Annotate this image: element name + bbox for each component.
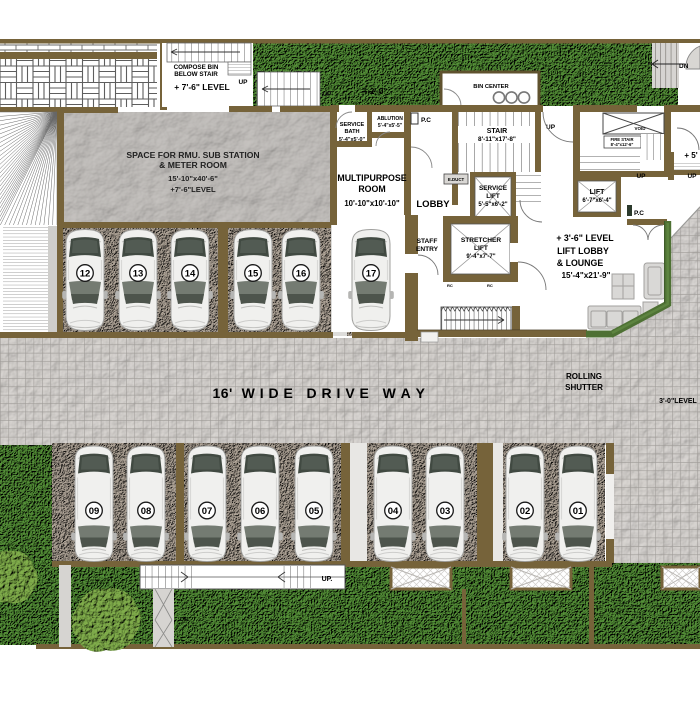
svg-text:+ 5': + 5' [684, 151, 697, 160]
svg-text:STAFF: STAFF [417, 238, 438, 245]
svg-text:15: 15 [248, 268, 259, 279]
svg-text:ROOM: ROOM [358, 184, 385, 194]
svg-text:RC: RC [487, 283, 493, 288]
svg-text:05: 05 [309, 506, 320, 517]
svg-text:+ 7'-6" LEVEL: + 7'-6" LEVEL [174, 82, 229, 92]
svg-text:BELOW STAIR: BELOW STAIR [174, 71, 218, 78]
svg-text:3'-0"LEVEL: 3'-0"LEVEL [659, 398, 697, 405]
svg-text:STRETCHER: STRETCHER [461, 237, 502, 244]
svg-text:5'-5"x6'-2": 5'-5"x6'-2" [478, 202, 507, 208]
svg-text:15'-10"x40'-6": 15'-10"x40'-6" [168, 174, 218, 183]
svg-text:STAIR: STAIR [487, 128, 507, 135]
svg-text:MULTIPURPOSE: MULTIPURPOSE [337, 173, 406, 183]
svg-text:14: 14 [185, 268, 196, 279]
svg-text:LIFT: LIFT [474, 245, 488, 252]
svg-text:P.C: P.C [634, 210, 644, 217]
svg-text:UP: UP [636, 173, 646, 180]
svg-text:09: 09 [89, 506, 100, 517]
svg-text:UP: UP [687, 173, 697, 180]
svg-text:10'-10"x10'-10": 10'-10"x10'-10" [344, 199, 400, 208]
svg-text:16' W I D E D R I V E W A: 16' W I D E D R I V E W A Y [212, 385, 425, 401]
svg-text:VOID: VOID [634, 126, 646, 131]
svg-text:SPACE FOR RMU. SUB STATION: SPACE FOR RMU. SUB STATION [126, 150, 259, 160]
svg-text:UP: UP [322, 91, 332, 98]
svg-text:LIFT: LIFT [590, 189, 605, 196]
svg-text:+ 2'-0": + 2'-0" [363, 87, 387, 96]
svg-text:13: 13 [133, 268, 144, 279]
svg-text:8'-11"x17'-8": 8'-11"x17'-8" [478, 136, 516, 143]
svg-text:12: 12 [80, 268, 91, 279]
svg-text:16: 16 [296, 268, 307, 279]
svg-text:LOBBY: LOBBY [416, 199, 450, 210]
svg-text:LIFT LOBBY: LIFT LOBBY [557, 246, 609, 256]
svg-text:ROLLING: ROLLING [566, 372, 602, 381]
svg-text:8'-4"x12'-6": 8'-4"x12'-6" [611, 142, 634, 147]
svg-text:& LOUNGE: & LOUNGE [557, 258, 604, 268]
svg-text:03: 03 [440, 506, 451, 517]
svg-text:SERVICE: SERVICE [340, 122, 365, 128]
svg-text:15'-4"x21'-9": 15'-4"x21'-9" [562, 271, 611, 280]
svg-text:DN: DN [679, 63, 689, 70]
svg-text:COMPOSE BIN: COMPOSE BIN [174, 64, 219, 71]
svg-text:ENTRY: ENTRY [416, 246, 439, 253]
svg-text:& METER ROOM: & METER ROOM [159, 160, 227, 170]
svg-text:DN.: DN. [180, 617, 190, 623]
svg-text:+ 3'-6" LEVEL: + 3'-6" LEVEL [556, 233, 614, 243]
svg-text:SERVICE: SERVICE [479, 185, 508, 192]
svg-text:08: 08 [141, 506, 152, 517]
svg-text:9'-4"x7'-7": 9'-4"x7'-7" [466, 254, 495, 260]
svg-text:E.DUCT: E.DUCT [448, 177, 465, 182]
svg-text:5'-4"x5'-5": 5'-4"x5'-5" [378, 123, 403, 129]
svg-text:02: 02 [520, 506, 531, 517]
svg-text:01: 01 [573, 506, 584, 517]
svg-text:RC: RC [447, 283, 453, 288]
svg-text:06: 06 [255, 506, 266, 517]
svg-text:ABLUTION: ABLUTION [377, 116, 403, 122]
svg-text:SHUTTER: SHUTTER [565, 383, 603, 392]
svg-text:P.C: P.C [421, 117, 431, 124]
svg-text:17: 17 [366, 268, 377, 279]
svg-text:6'-7"x6'-4": 6'-7"x6'-4" [582, 198, 611, 204]
svg-text:BIN CENTER: BIN CENTER [473, 84, 509, 90]
svg-text:UP.: UP. [322, 576, 333, 583]
svg-text:07: 07 [202, 506, 213, 517]
svg-text:+7'-6"LEVEL: +7'-6"LEVEL [170, 185, 216, 194]
svg-text:5'-4"x5'-0": 5'-4"x5'-0" [339, 137, 366, 143]
svg-text:BATH: BATH [344, 129, 359, 135]
svg-text:LIFT: LIFT [486, 193, 500, 200]
svg-text:UP: UP [238, 79, 248, 86]
svg-text:04: 04 [388, 506, 399, 517]
